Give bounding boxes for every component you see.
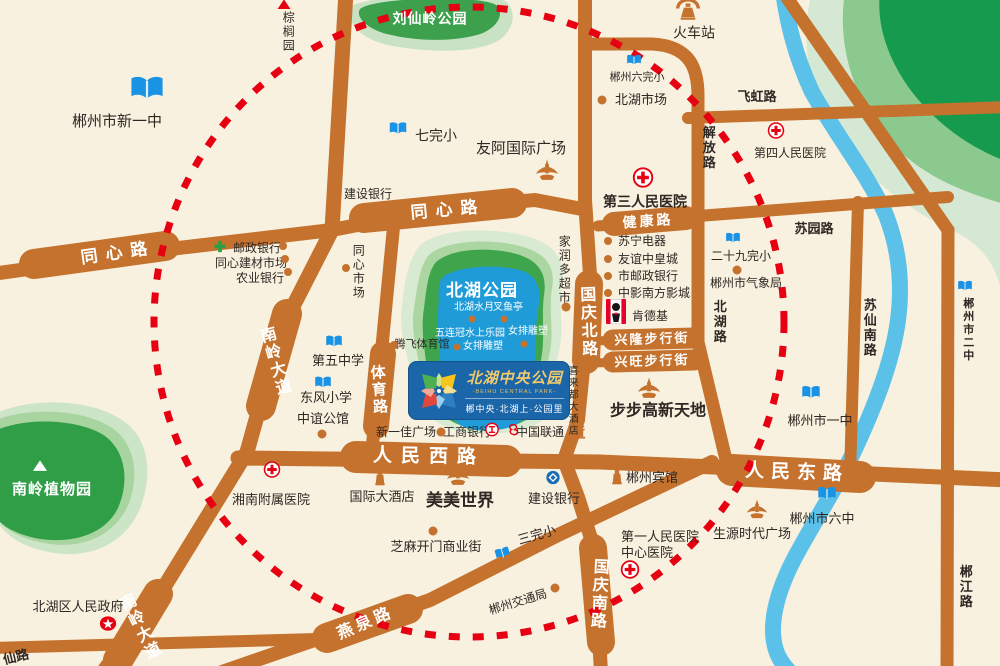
poi-dot-icon xyxy=(521,341,528,348)
poi-dot-icon xyxy=(598,96,607,105)
poi-dot-marker xyxy=(733,266,742,275)
poi-dot-marker xyxy=(281,255,289,263)
poi-dot-marker xyxy=(551,584,560,593)
poi-dot-icon xyxy=(469,316,476,323)
poi-label: 第五中学 xyxy=(312,354,364,368)
poi-dot-icon xyxy=(279,242,287,250)
poi-dot-marker xyxy=(390,341,398,349)
poi-label: 北湖市场 xyxy=(615,93,667,107)
poi-label: 郴州市新一中 xyxy=(72,114,162,130)
icbc-icon xyxy=(485,423,499,442)
poi-dot-marker xyxy=(604,255,612,263)
school-icon xyxy=(493,544,512,565)
poi-label: 中谊公馆 xyxy=(297,412,349,426)
train-icon xyxy=(675,0,702,25)
poi-label: 郴州市六中 xyxy=(789,512,854,526)
poi-dot-icon xyxy=(318,430,327,439)
poi-label: 中国联通 xyxy=(516,426,564,438)
tower-icon xyxy=(746,499,768,524)
poi-label: 友谊中皇城 xyxy=(618,253,678,265)
poi-label: 芝麻开门商业街 xyxy=(390,540,481,554)
road-name-label: 国庆北路 xyxy=(576,286,595,359)
poi-label: 二十九完小 xyxy=(711,250,771,262)
road-name-label: 兴隆步行街 xyxy=(614,331,689,347)
hotel-icon xyxy=(611,465,624,490)
post-icon xyxy=(214,240,227,258)
school-icon xyxy=(315,376,332,395)
pagoda-icon xyxy=(575,423,587,444)
road-name-label: 南岭大道 xyxy=(255,325,291,399)
poi-label: 中心医院 xyxy=(621,546,673,560)
project-pinwheel-icon xyxy=(413,365,465,417)
poi-dot-icon xyxy=(604,272,612,280)
poi-dot-icon xyxy=(604,289,612,297)
poi-dot-marker xyxy=(598,96,607,105)
poi-dot-icon xyxy=(551,584,560,593)
road-name-label: 同心路 xyxy=(410,198,486,222)
map-canvas: 同心路同心路南岭大道南岭大道体育路人民西路人民东路国庆北路国庆南路健康路兴隆步行… xyxy=(0,0,1000,666)
poi-label: 建设银行 xyxy=(528,492,580,506)
poi-label: 肯德基 xyxy=(632,310,668,322)
park-name-label: 南岭植物园 xyxy=(12,482,92,498)
poi-label: 生源时代广场 xyxy=(713,527,791,541)
school-icon xyxy=(627,53,642,71)
street-name-label: 飞虹路 xyxy=(737,90,776,104)
poi-dot-icon xyxy=(454,344,461,351)
poi-label: 同心建材市场 xyxy=(215,257,287,269)
school-icon xyxy=(818,486,837,506)
school-icon xyxy=(389,121,407,140)
poi-label: 郴州宾馆 xyxy=(626,471,678,485)
poi-dot-icon xyxy=(429,527,438,536)
poi-label: 郴州市气象局 xyxy=(710,277,782,289)
poi-dot-marker xyxy=(604,237,612,245)
poi-dot-icon xyxy=(501,316,508,323)
road-name-label: 同心路 xyxy=(80,239,157,267)
poi-label: 北湖区人民政府 xyxy=(32,600,123,614)
street-name-label: 苏园路 xyxy=(794,222,833,236)
poi-dot-icon xyxy=(604,237,612,245)
poi-label: 火车站 xyxy=(673,26,715,41)
tri-red-icon xyxy=(278,0,291,14)
hotel-icon xyxy=(374,466,387,491)
road-name-label: 体育路 xyxy=(368,364,387,416)
poi-dot-icon xyxy=(437,428,446,437)
street-name-label: 仙路 xyxy=(2,647,31,666)
poi-dot-marker xyxy=(437,428,446,437)
poi-label: 工商银行 xyxy=(443,426,491,438)
school-icon xyxy=(958,279,973,297)
school-icon xyxy=(726,231,741,249)
street-name-label: 郴江路 xyxy=(958,565,972,610)
tri-white-icon xyxy=(33,458,47,476)
poi-dot-marker xyxy=(318,430,327,439)
poi-dot-icon xyxy=(342,264,350,272)
poi-dot-icon xyxy=(604,255,612,263)
hospital-icon xyxy=(621,560,640,584)
project-logo-card: 北湖中央公园 -BEIHU CENTRAL PARK- 郴中央·北湖上·公园里 xyxy=(408,361,570,420)
street-name-label: 北湖路 xyxy=(712,300,726,345)
road-name-label: 人民东路 xyxy=(745,461,850,484)
poi-label: 邮政银行 xyxy=(233,242,281,254)
ccb-icon xyxy=(546,471,560,490)
project-name: 北湖中央公园 xyxy=(465,367,564,388)
tower-icon xyxy=(446,464,470,491)
poi-dot-icon xyxy=(390,341,398,349)
poi-dot-marker xyxy=(604,289,612,297)
poi-label: 新一佳广场 xyxy=(376,426,436,438)
park-name-label: 北湖公园 xyxy=(446,282,518,300)
road-name-label: 国庆南路 xyxy=(587,558,607,631)
poi-dot-marker xyxy=(454,344,461,351)
road-name-label: 燕泉路 xyxy=(335,605,397,644)
poi-label: 第三人民医院 xyxy=(603,195,687,210)
poi-dot-marker xyxy=(429,527,438,536)
poi-label: 七完小 xyxy=(415,129,457,144)
road-name-label: 兴旺步行街 xyxy=(614,353,689,369)
poi-label: 苏宁电器 xyxy=(618,235,666,247)
poi-label: 同心市场 xyxy=(352,244,364,300)
poi-dot-icon xyxy=(733,266,742,275)
park-spot-label: 女排雕塑 xyxy=(508,327,548,337)
poi-label: 中影南方影城 xyxy=(618,287,690,299)
street-name-label: 苏仙南路 xyxy=(862,298,876,358)
hospital-icon xyxy=(264,461,281,483)
park-spot-label: 女排雕塑 xyxy=(463,342,503,352)
poi-label: 美美世界 xyxy=(426,492,494,510)
poi-label: 三完小 xyxy=(516,523,557,547)
poi-label: 家润多超市 xyxy=(558,235,570,305)
park-spot-label: 叉鱼亭 xyxy=(493,303,523,313)
poi-label: 步步高新天地 xyxy=(610,404,706,421)
star-icon xyxy=(100,616,117,636)
hospital-icon xyxy=(768,122,785,144)
tower-icon xyxy=(637,377,661,404)
poi-dot-marker xyxy=(279,242,287,250)
poi-label: 国际大酒店 xyxy=(349,490,414,504)
poi-label: 友阿国际广场 xyxy=(476,141,566,157)
road-name-label: 健康路 xyxy=(622,212,674,230)
project-name-en: -BEIHU CENTRAL PARK- xyxy=(465,389,564,395)
poi-dot-icon xyxy=(284,268,292,276)
poi-dot-marker xyxy=(604,272,612,280)
park-spot-label: 北湖水月 xyxy=(454,303,494,313)
poi-dot-marker xyxy=(521,341,528,348)
poi-dot-marker xyxy=(469,316,476,323)
poi-label: 湘南附属医院 xyxy=(232,493,310,507)
project-tagline: 郴中央·北湖上·公园里 xyxy=(465,398,564,415)
school-icon xyxy=(802,385,821,405)
poi-label: 第一人民医院 xyxy=(621,530,699,544)
poi-label: 腾飞体育馆 xyxy=(395,339,450,350)
poi-dot-marker xyxy=(501,316,508,323)
poi-dot-marker xyxy=(562,303,571,312)
poi-dot-marker xyxy=(284,268,292,276)
label-layer: 同心路同心路南岭大道南岭大道体育路人民西路人民东路国庆北路国庆南路健康路兴隆步行… xyxy=(0,0,1000,666)
poi-label: 市邮政银行 xyxy=(618,270,678,282)
poi-label: 郴州交通局 xyxy=(487,587,548,616)
tower-icon xyxy=(535,159,559,186)
poi-dot-icon xyxy=(562,303,571,312)
poi-label: 建设银行 xyxy=(344,188,392,200)
poi-label: 第四人民医院 xyxy=(754,147,826,159)
poi-label: 农业银行 xyxy=(236,272,284,284)
poi-label: 棕榈园 xyxy=(282,11,294,53)
street-name-label: 郴州市二中 xyxy=(961,298,972,363)
kfc-icon xyxy=(606,299,626,329)
school-icon xyxy=(326,335,343,354)
school-icon xyxy=(130,75,164,107)
park-name-label: 刘仙岭公园 xyxy=(393,12,468,27)
unicom-icon xyxy=(507,423,520,441)
poi-dot-marker xyxy=(342,264,350,272)
poi-label: 郴州市一中 xyxy=(787,414,852,428)
hospital-icon xyxy=(633,167,654,193)
street-name-label: 解放路 xyxy=(701,126,715,171)
poi-label: 郴州六完小 xyxy=(610,72,665,83)
poi-dot-icon xyxy=(281,255,289,263)
